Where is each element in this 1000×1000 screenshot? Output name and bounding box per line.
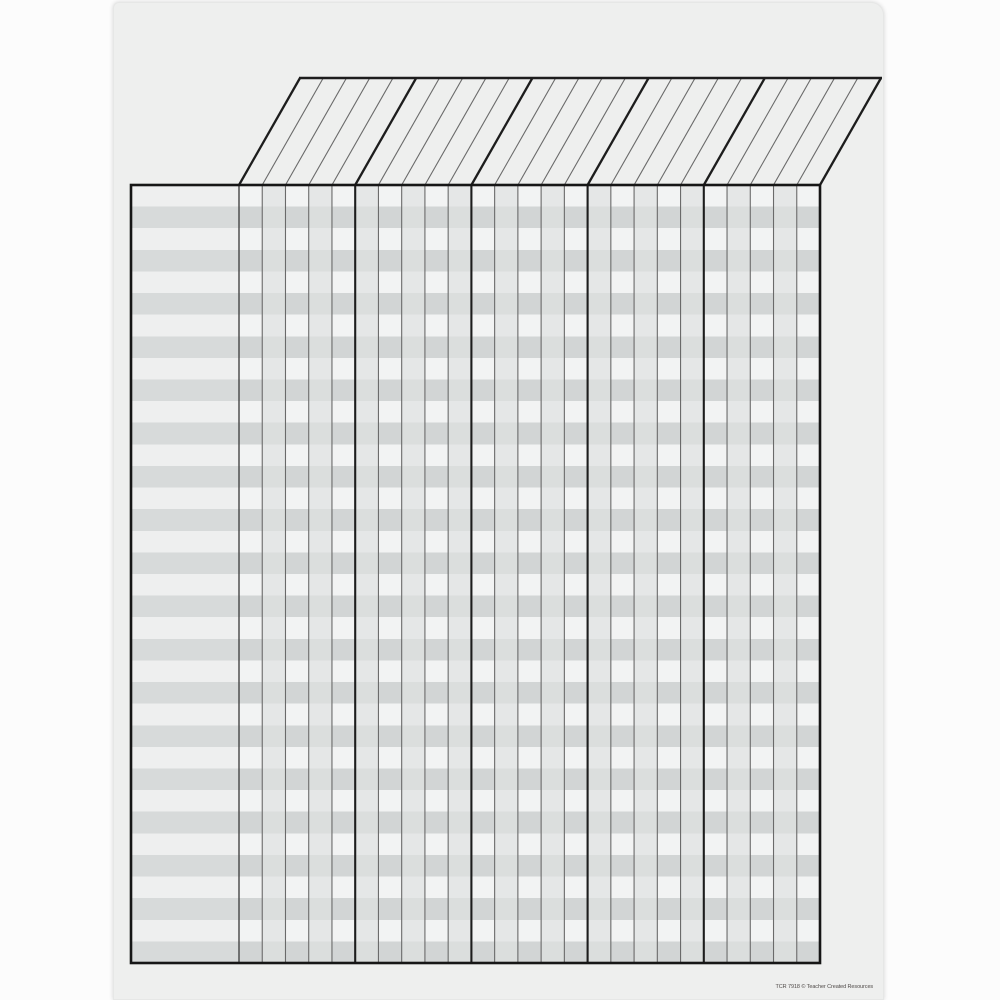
grid-cell (471, 380, 495, 402)
grid-cell (611, 423, 635, 445)
grid-cell (495, 293, 519, 315)
grid-cell (332, 855, 356, 877)
grid-cell (378, 769, 402, 791)
grid-cell (774, 552, 798, 574)
grid-cell (727, 682, 751, 704)
grid-cell (378, 812, 402, 834)
grid-cell (564, 574, 588, 596)
grid-cell (681, 769, 705, 791)
grid-cell (262, 855, 286, 877)
grid-cell (309, 228, 333, 250)
grid-cell (402, 704, 426, 726)
grid-cell (495, 790, 519, 812)
grid-cell (704, 617, 728, 639)
grid-cell (355, 444, 379, 466)
grid-cell (471, 271, 495, 293)
grid-cell (425, 336, 449, 358)
grid-cell (425, 941, 449, 963)
grid-cell (262, 509, 286, 531)
grid-cell (681, 228, 705, 250)
grid-cell (309, 574, 333, 596)
grid-cell (495, 574, 519, 596)
grid-cell (541, 423, 565, 445)
grid-cell (727, 639, 751, 661)
grid-cell (681, 401, 705, 423)
grid-cell (495, 898, 519, 920)
grid-cell (681, 423, 705, 445)
grid-cell (448, 401, 472, 423)
grid-cell (402, 790, 426, 812)
grid-cell (471, 401, 495, 423)
grid-cell (727, 531, 751, 553)
grid-cell (378, 682, 402, 704)
grid-cell (774, 423, 798, 445)
grid-cell (448, 271, 472, 293)
grid-cell (448, 315, 472, 337)
grid-cell (774, 380, 798, 402)
grid-cell (797, 488, 821, 510)
grid-cell (541, 401, 565, 423)
grid-cell (750, 250, 774, 272)
grid-cell (402, 466, 426, 488)
grid-cell (704, 682, 728, 704)
grid-cell (471, 596, 495, 618)
grid-cell (402, 639, 426, 661)
grid-cell (448, 466, 472, 488)
grid-cell (541, 207, 565, 229)
grid-cell (239, 250, 263, 272)
grid-cell (564, 725, 588, 747)
grid-cell (681, 444, 705, 466)
grid-cell (657, 466, 681, 488)
grid-cell (285, 552, 309, 574)
grid-cell (657, 704, 681, 726)
grid-cell (634, 790, 658, 812)
grid-cell (332, 941, 356, 963)
grid-cell (425, 920, 449, 942)
grid-cell (797, 596, 821, 618)
grid-cell (704, 207, 728, 229)
grid-cell (285, 444, 309, 466)
grid-cell (471, 855, 495, 877)
grid-cell (774, 466, 798, 488)
grid-cell (495, 877, 519, 899)
grid-cell (285, 682, 309, 704)
grid-cell (355, 401, 379, 423)
grid-cell (471, 812, 495, 834)
grid-cell (541, 293, 565, 315)
grid-cell (355, 920, 379, 942)
grid-cell (774, 293, 798, 315)
grid-cell (285, 898, 309, 920)
grid-cell (774, 682, 798, 704)
grid-cell (797, 552, 821, 574)
grid-cell (495, 704, 519, 726)
grid-cell (285, 315, 309, 337)
grid-cell (309, 747, 333, 769)
grid-cell (239, 660, 263, 682)
grid-cell (332, 293, 356, 315)
grid-cell (239, 747, 263, 769)
grid-cell (564, 790, 588, 812)
grid-cell (657, 228, 681, 250)
grid-cell (332, 466, 356, 488)
grid-cell (564, 401, 588, 423)
grid-cell (309, 877, 333, 899)
grid-cell (704, 552, 728, 574)
grid-cell (425, 488, 449, 510)
grid-cell (448, 790, 472, 812)
grid-cell (750, 228, 774, 250)
grid-cell (402, 444, 426, 466)
grid-cell (634, 315, 658, 337)
grid-cell (518, 336, 542, 358)
grid-cell (657, 509, 681, 531)
grid-cell (355, 617, 379, 639)
grid-cell (378, 941, 402, 963)
grid-cell (262, 833, 286, 855)
grid-cell (355, 293, 379, 315)
grid-cell (564, 271, 588, 293)
grid-cell (262, 466, 286, 488)
grid-cell (495, 769, 519, 791)
grid-cell (309, 941, 333, 963)
name-column-cell (131, 271, 239, 293)
grid-cell (518, 877, 542, 899)
grid-cell (471, 509, 495, 531)
grid-cell (332, 790, 356, 812)
slanted-header (239, 78, 882, 185)
page-background: TCR 7918 © Teacher Created Resources (0, 0, 1000, 1000)
grid-cell (518, 704, 542, 726)
grid-cell (611, 185, 635, 207)
grid-cell (588, 833, 612, 855)
grid-cell (239, 358, 263, 380)
grid-cell (634, 725, 658, 747)
grid-cell (541, 574, 565, 596)
grid-cell (471, 574, 495, 596)
grid-cell (309, 660, 333, 682)
grid-cell (541, 920, 565, 942)
grid-cell (355, 769, 379, 791)
grid-cell (471, 185, 495, 207)
grid-cell (797, 769, 821, 791)
grid-cell (727, 401, 751, 423)
grid-cell (332, 552, 356, 574)
grid-cell (355, 336, 379, 358)
grid-cell (471, 617, 495, 639)
grid-cell (657, 617, 681, 639)
grid-cell (495, 639, 519, 661)
grid-cell (750, 574, 774, 596)
grid-cell (657, 380, 681, 402)
grid-cell (774, 531, 798, 553)
grid-cell (797, 855, 821, 877)
grid-cell (495, 423, 519, 445)
grid-cell (448, 574, 472, 596)
grid-cell (378, 185, 402, 207)
grid-cell (402, 509, 426, 531)
grid-cell (611, 855, 635, 877)
grid-cell (588, 488, 612, 510)
grid-cell (797, 682, 821, 704)
grid-cell (750, 660, 774, 682)
grid-cell (495, 531, 519, 553)
grid-cell (471, 531, 495, 553)
name-column-cell (131, 898, 239, 920)
grid-cell (239, 725, 263, 747)
grid-cell (564, 531, 588, 553)
grid-cell (797, 185, 821, 207)
grid-cell (588, 704, 612, 726)
grid-cell (332, 488, 356, 510)
grid-cell (797, 466, 821, 488)
grid-cell (239, 315, 263, 337)
grid-cell (564, 380, 588, 402)
grid-cell (634, 380, 658, 402)
grid-cell (425, 660, 449, 682)
grid-cell (239, 790, 263, 812)
grid-cell (774, 228, 798, 250)
grid-cell (541, 358, 565, 380)
grid-cell (704, 444, 728, 466)
grid-cell (588, 336, 612, 358)
grid-cell (634, 466, 658, 488)
grid-cell (239, 704, 263, 726)
grid-cell (309, 401, 333, 423)
grid-cell (402, 574, 426, 596)
grid-cell (448, 747, 472, 769)
grid-cell (285, 660, 309, 682)
grid-cell (355, 250, 379, 272)
name-column-cell (131, 747, 239, 769)
grid-cell (355, 855, 379, 877)
grid-cell (471, 790, 495, 812)
grid-cell (727, 271, 751, 293)
grid-cell (774, 941, 798, 963)
grid-cell (564, 855, 588, 877)
grid-cell (425, 315, 449, 337)
grid-cell (471, 250, 495, 272)
grid-cell (657, 315, 681, 337)
grid-cell (797, 444, 821, 466)
grid-cell (634, 941, 658, 963)
grid-cell (541, 790, 565, 812)
grid-cell (611, 704, 635, 726)
grid-cell (239, 552, 263, 574)
grid-cell (309, 315, 333, 337)
grid-cell (681, 941, 705, 963)
grid-cell (541, 315, 565, 337)
grid-cell (518, 725, 542, 747)
grid-cell (402, 358, 426, 380)
grid-cell (402, 531, 426, 553)
grid-cell (262, 531, 286, 553)
grid-cell (797, 380, 821, 402)
grid-cell (495, 617, 519, 639)
grid-cell (564, 639, 588, 661)
grid-cell (657, 596, 681, 618)
grid-cell (332, 769, 356, 791)
grid-cell (471, 769, 495, 791)
grid-cell (332, 682, 356, 704)
grid-cell (541, 531, 565, 553)
grid-cell (355, 228, 379, 250)
grid-cell (750, 552, 774, 574)
grid-cell (332, 531, 356, 553)
grid-cell (309, 488, 333, 510)
grid-cell (518, 488, 542, 510)
grid-cell (355, 423, 379, 445)
grid-cell (518, 444, 542, 466)
grid-cell (518, 660, 542, 682)
grid-cell (518, 747, 542, 769)
grid-cell (309, 639, 333, 661)
grid-cell (285, 596, 309, 618)
grid-cell (355, 682, 379, 704)
grid-cell (611, 552, 635, 574)
grid-cell (448, 596, 472, 618)
grid-cell (681, 207, 705, 229)
grid-cell (448, 185, 472, 207)
grid-cell (634, 336, 658, 358)
grid-cell (681, 552, 705, 574)
grid-cell (262, 898, 286, 920)
grid-cell (309, 293, 333, 315)
grid-cell (239, 531, 263, 553)
grid-cell (378, 315, 402, 337)
grid-cell (285, 207, 309, 229)
grid-cell (681, 380, 705, 402)
grid-cell (774, 877, 798, 899)
grid-cell (332, 380, 356, 402)
grid-cell (750, 855, 774, 877)
grid-cell (402, 769, 426, 791)
grid-cell (750, 833, 774, 855)
grid-cell (797, 315, 821, 337)
grid-cell (657, 660, 681, 682)
grid-cell (750, 315, 774, 337)
grid-cell (309, 552, 333, 574)
grid-cell (750, 941, 774, 963)
grid-cell (611, 228, 635, 250)
grid-cell (425, 747, 449, 769)
grid-cell (657, 639, 681, 661)
grid-cell (239, 639, 263, 661)
grid-cell (704, 250, 728, 272)
grid-cell (634, 250, 658, 272)
grid-cell (750, 466, 774, 488)
grid-cell (471, 228, 495, 250)
grid-cell (355, 898, 379, 920)
grid-cell (681, 877, 705, 899)
grid-cell (309, 250, 333, 272)
grid-cell (239, 596, 263, 618)
grid-cell (727, 380, 751, 402)
grid-cell (681, 725, 705, 747)
grid-cell (774, 509, 798, 531)
grid-cell (727, 812, 751, 834)
grid-cell (681, 509, 705, 531)
grid-cell (378, 855, 402, 877)
grid-cell (425, 617, 449, 639)
grid-cell (704, 531, 728, 553)
grid-cell (564, 769, 588, 791)
grid-cell (704, 380, 728, 402)
grid-cell (285, 271, 309, 293)
grid-cell (448, 682, 472, 704)
grid-cell (611, 444, 635, 466)
grid-cell (727, 790, 751, 812)
grid-cell (588, 941, 612, 963)
grid-cell (262, 660, 286, 682)
grid-cell (564, 660, 588, 682)
grid-cell (797, 833, 821, 855)
grid-cell (378, 898, 402, 920)
grid-cell (704, 941, 728, 963)
grid-cell (681, 920, 705, 942)
grid-cell (332, 228, 356, 250)
grid-cell (332, 185, 356, 207)
grid-cell (611, 660, 635, 682)
grid-cell (471, 423, 495, 445)
grid-cell (262, 336, 286, 358)
grid-cell (495, 380, 519, 402)
grid-cell (634, 509, 658, 531)
grid-cell (774, 336, 798, 358)
name-column-cell (131, 466, 239, 488)
grid-cell (262, 596, 286, 618)
grid-cell (657, 574, 681, 596)
grid-cell (378, 725, 402, 747)
grid-cell (750, 531, 774, 553)
grid-cell (588, 574, 612, 596)
grid-cell (681, 271, 705, 293)
grid-cell (332, 509, 356, 531)
grid-cell (355, 185, 379, 207)
grid-cell (611, 812, 635, 834)
grid-cell (588, 509, 612, 531)
grid-cell (285, 466, 309, 488)
grid-cell (588, 444, 612, 466)
grid-cell (448, 336, 472, 358)
grid-cell (262, 401, 286, 423)
name-column-cell (131, 877, 239, 899)
grid-cell (402, 207, 426, 229)
grid-cell (262, 682, 286, 704)
chart-grid (0, 0, 1000, 1000)
grid-cell (425, 401, 449, 423)
grid-cell (564, 185, 588, 207)
grid-cell (657, 833, 681, 855)
grid-cell (355, 639, 379, 661)
grid-cell (355, 552, 379, 574)
grid-cell (774, 704, 798, 726)
grid-cell (518, 271, 542, 293)
grid-cell (262, 704, 286, 726)
grid-cell (797, 639, 821, 661)
grid-cell (471, 704, 495, 726)
grid-cell (448, 725, 472, 747)
grid-cell (657, 293, 681, 315)
grid-cell (239, 207, 263, 229)
grid-cell (448, 617, 472, 639)
grid-cell (541, 725, 565, 747)
grid-cell (518, 358, 542, 380)
grid-cell (262, 725, 286, 747)
grid-cell (564, 941, 588, 963)
grid-cell (704, 855, 728, 877)
